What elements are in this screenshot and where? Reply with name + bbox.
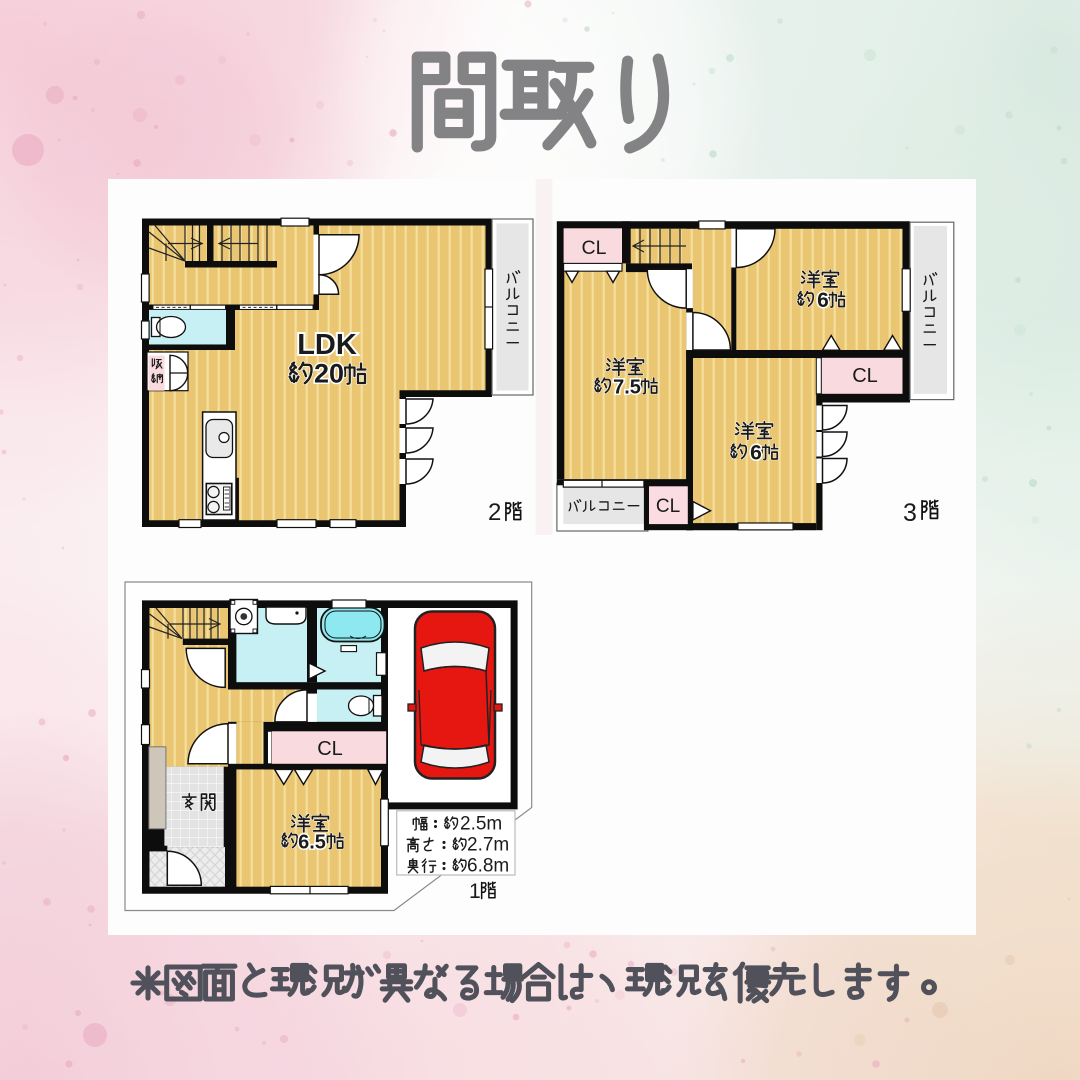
svg-text:6: 6 <box>817 289 829 312</box>
svg-text:CL: CL <box>852 365 878 387</box>
svg-text:3: 3 <box>903 499 917 527</box>
svg-text:2: 2 <box>488 499 501 526</box>
svg-text:7.5: 7.5 <box>613 377 641 399</box>
svg-text:1: 1 <box>469 880 481 903</box>
svg-text:2.5m: 2.5m <box>460 814 502 835</box>
svg-text:20: 20 <box>314 359 344 389</box>
svg-text:2.7m: 2.7m <box>467 835 509 856</box>
svg-text:6.5: 6.5 <box>298 832 326 854</box>
svg-text:CL: CL <box>582 237 607 259</box>
svg-text:LDK: LDK <box>297 329 357 361</box>
svg-text:CL: CL <box>317 738 343 760</box>
svg-text:CL: CL <box>656 496 680 517</box>
svg-text:6: 6 <box>750 442 762 465</box>
svg-text:6.8m: 6.8m <box>467 856 509 877</box>
